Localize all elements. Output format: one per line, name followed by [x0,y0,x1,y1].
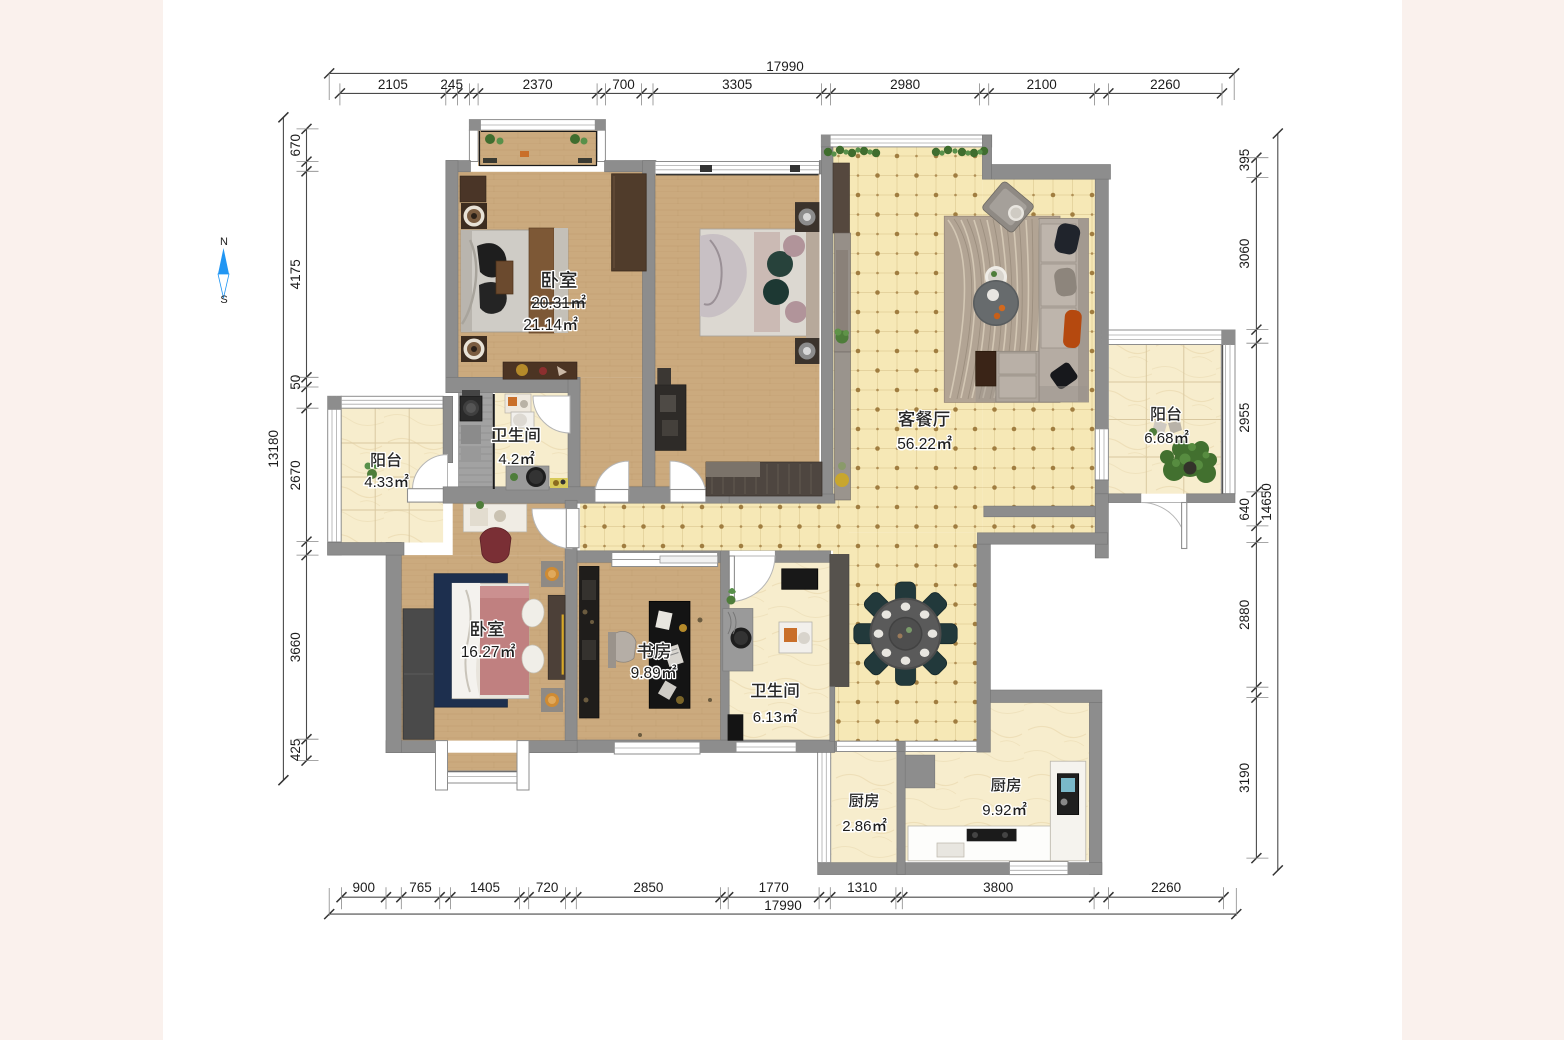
svg-text:14650: 14650 [1259,483,1274,521]
svg-text:3800: 3800 [983,880,1013,895]
svg-text:2260: 2260 [1150,77,1180,92]
svg-text:2670: 2670 [288,460,303,490]
svg-text:3190: 3190 [1237,763,1252,793]
svg-text:670: 670 [288,134,303,157]
svg-text:3060: 3060 [1237,239,1252,269]
svg-text:720: 720 [536,880,559,895]
svg-text:2260: 2260 [1151,880,1181,895]
svg-text:245: 245 [440,77,463,92]
svg-text:425: 425 [288,739,303,762]
svg-text:765: 765 [409,880,432,895]
svg-text:1770: 1770 [759,880,789,895]
svg-text:4.33: 4.33 [364,474,393,491]
svg-text:4175: 4175 [288,259,303,289]
svg-text:2100: 2100 [1027,77,1057,92]
svg-text:1310: 1310 [847,880,877,895]
svg-text:395: 395 [1237,149,1252,172]
svg-text:S: S [220,294,227,306]
svg-text:2.86: 2.86 [842,818,871,835]
svg-text:2955: 2955 [1237,403,1252,433]
svg-text:50: 50 [288,375,303,390]
svg-text:900: 900 [353,880,376,895]
svg-text:640: 640 [1237,498,1252,521]
svg-text:17990: 17990 [766,59,804,74]
svg-text:700: 700 [612,77,635,92]
svg-text:16.27: 16.27 [461,644,500,661]
svg-text:56.22: 56.22 [897,436,936,453]
svg-text:17990: 17990 [764,898,802,913]
svg-text:2105: 2105 [378,77,408,92]
svg-text:13180: 13180 [266,430,281,468]
svg-text:9.89: 9.89 [631,665,661,682]
svg-text:2980: 2980 [890,77,920,92]
svg-text:1405: 1405 [470,880,500,895]
svg-text:2850: 2850 [633,880,663,895]
svg-text:6.13: 6.13 [753,709,782,726]
svg-text:4.2: 4.2 [498,451,519,468]
svg-text:21.14: 21.14 [523,317,562,334]
svg-text:N: N [220,236,228,248]
svg-text:2370: 2370 [523,77,553,92]
svg-text:3305: 3305 [722,77,752,92]
svg-text:9.92: 9.92 [982,802,1011,819]
svg-text:2880: 2880 [1237,600,1252,630]
svg-text:3660: 3660 [288,632,303,662]
svg-text:6.68: 6.68 [1144,430,1173,447]
